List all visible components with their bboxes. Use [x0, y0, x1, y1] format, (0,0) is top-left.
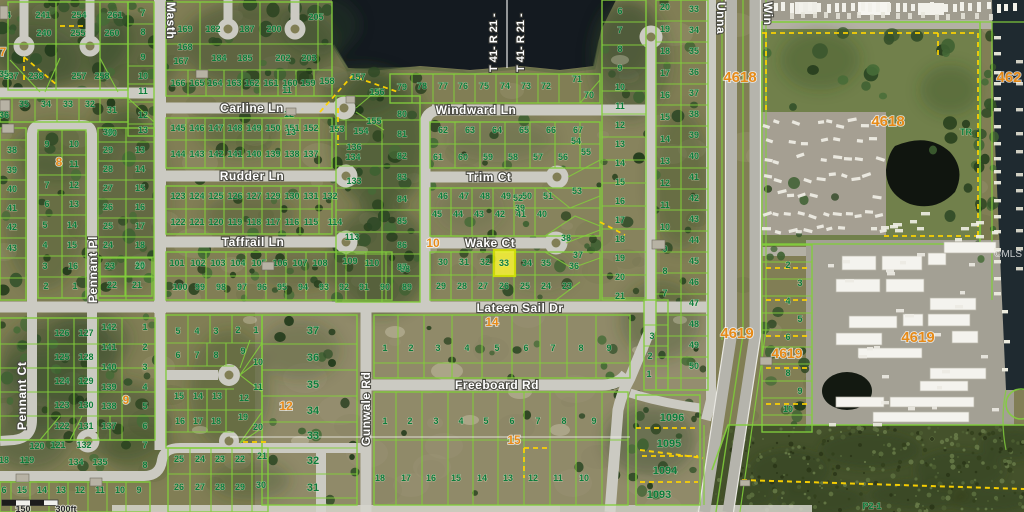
- svg-text:32: 32: [307, 455, 319, 467]
- svg-text:120: 120: [208, 217, 223, 227]
- svg-text:136: 136: [346, 142, 361, 152]
- svg-text:80: 80: [397, 109, 407, 119]
- svg-text:137: 137: [303, 149, 318, 159]
- svg-text:166: 166: [170, 78, 185, 88]
- svg-text:7: 7: [550, 343, 555, 353]
- svg-text:37: 37: [573, 250, 583, 260]
- svg-text:84: 84: [397, 194, 407, 204]
- svg-text:7: 7: [617, 25, 622, 35]
- svg-text:Win: Win: [761, 2, 775, 25]
- svg-text:154: 154: [353, 126, 368, 136]
- svg-text:Unna: Unna: [714, 2, 728, 34]
- svg-text:13: 13: [286, 127, 296, 137]
- svg-text:7: 7: [0, 45, 7, 59]
- svg-text:168: 168: [177, 42, 192, 52]
- svg-text:40: 40: [7, 184, 17, 194]
- svg-text:90: 90: [380, 282, 390, 292]
- svg-text:Freeboard Rd: Freeboard Rd: [455, 378, 539, 392]
- svg-text:6: 6: [509, 416, 514, 426]
- svg-text:11: 11: [553, 473, 563, 483]
- svg-text:31: 31: [307, 482, 319, 494]
- svg-text:261: 261: [107, 10, 122, 20]
- svg-text:8: 8: [140, 27, 145, 37]
- svg-text:15: 15: [451, 473, 461, 483]
- svg-text:5: 5: [142, 401, 147, 411]
- svg-text:12: 12: [75, 485, 85, 495]
- svg-text:16: 16: [175, 416, 185, 426]
- svg-text:48: 48: [689, 319, 699, 329]
- svg-text:109: 109: [342, 256, 357, 266]
- svg-text:4: 4: [42, 240, 47, 250]
- svg-text:6: 6: [142, 421, 147, 431]
- svg-text:5: 5: [494, 343, 499, 353]
- svg-text:140: 140: [246, 149, 261, 159]
- svg-text:1: 1: [382, 416, 387, 426]
- svg-text:17: 17: [401, 473, 411, 483]
- svg-text:1: 1: [646, 369, 651, 379]
- svg-text:4619: 4619: [901, 329, 934, 346]
- svg-text:11: 11: [253, 382, 263, 392]
- svg-text:6: 6: [785, 332, 790, 342]
- svg-text:14: 14: [477, 473, 487, 483]
- svg-text:145: 145: [170, 123, 185, 133]
- svg-text:32: 32: [85, 99, 95, 109]
- svg-text:12: 12: [615, 120, 625, 130]
- svg-text:7: 7: [535, 416, 540, 426]
- svg-text:155: 155: [366, 116, 381, 126]
- svg-text:1093: 1093: [647, 489, 671, 501]
- svg-text:29: 29: [436, 281, 446, 291]
- svg-text:115: 115: [304, 217, 319, 227]
- svg-text:184: 184: [211, 53, 226, 63]
- svg-text:96: 96: [257, 282, 267, 292]
- svg-text:57: 57: [533, 152, 543, 162]
- svg-text:21: 21: [615, 291, 625, 301]
- svg-text:104: 104: [230, 258, 245, 268]
- svg-text:1: 1: [382, 343, 387, 353]
- svg-text:254: 254: [71, 10, 86, 20]
- svg-text:141: 141: [101, 342, 116, 352]
- svg-text:1: 1: [142, 322, 147, 332]
- svg-text:36: 36: [569, 261, 579, 271]
- svg-text:165: 165: [189, 78, 204, 88]
- svg-text:20: 20: [615, 272, 625, 282]
- svg-text:33: 33: [63, 99, 73, 109]
- svg-text:54: 54: [571, 136, 581, 146]
- svg-text:41: 41: [7, 203, 17, 213]
- svg-text:42: 42: [495, 209, 505, 219]
- svg-text:32: 32: [480, 257, 490, 267]
- svg-text:167: 167: [173, 56, 188, 66]
- svg-text:44: 44: [453, 209, 463, 219]
- svg-text:16: 16: [426, 473, 436, 483]
- svg-text:35: 35: [19, 99, 29, 109]
- svg-text:28: 28: [103, 164, 113, 174]
- svg-text:13: 13: [660, 156, 670, 166]
- svg-text:137: 137: [101, 421, 116, 431]
- svg-text:2: 2: [407, 416, 412, 426]
- svg-text:35: 35: [541, 258, 551, 268]
- svg-text:101: 101: [169, 258, 184, 268]
- svg-text:61: 61: [433, 152, 443, 162]
- svg-text:12: 12: [239, 393, 249, 403]
- svg-text:134: 134: [345, 152, 360, 162]
- svg-text:70: 70: [584, 90, 594, 100]
- svg-text:58: 58: [508, 152, 518, 162]
- svg-text:140: 140: [101, 362, 116, 372]
- svg-text:14: 14: [660, 134, 670, 144]
- svg-text:2: 2: [142, 342, 147, 352]
- svg-text:24: 24: [195, 454, 205, 464]
- svg-text:16: 16: [135, 202, 145, 212]
- svg-text:127: 127: [78, 328, 93, 338]
- svg-text:91: 91: [359, 282, 369, 292]
- svg-text:77: 77: [438, 81, 448, 91]
- svg-text:15: 15: [660, 112, 670, 122]
- svg-text:25: 25: [174, 454, 184, 464]
- svg-text:138: 138: [101, 401, 116, 411]
- svg-text:39: 39: [515, 203, 525, 213]
- svg-text:8: 8: [561, 416, 566, 426]
- svg-text:15: 15: [135, 183, 145, 193]
- svg-text:5: 5: [797, 314, 802, 324]
- svg-text:169: 169: [177, 24, 192, 34]
- svg-text:113: 113: [345, 232, 360, 242]
- svg-text:20: 20: [135, 261, 145, 271]
- svg-text:Wake Ct: Wake Ct: [465, 236, 515, 250]
- svg-text:6: 6: [617, 6, 622, 16]
- svg-text:36: 36: [307, 352, 319, 364]
- svg-text:13: 13: [503, 473, 513, 483]
- svg-text:86: 86: [397, 240, 407, 250]
- svg-text:138: 138: [284, 149, 299, 159]
- svg-text:26: 26: [499, 281, 509, 291]
- svg-text:162: 162: [244, 78, 259, 88]
- svg-text:7: 7: [140, 8, 145, 18]
- svg-text:12: 12: [528, 473, 538, 483]
- svg-text:118: 118: [247, 217, 262, 227]
- svg-text:53: 53: [572, 186, 582, 196]
- svg-text:15: 15: [174, 391, 184, 401]
- svg-text:24: 24: [541, 281, 551, 291]
- svg-text:19: 19: [660, 24, 670, 34]
- svg-text:62: 62: [438, 125, 448, 135]
- svg-text:122: 122: [170, 217, 185, 227]
- svg-text:153: 153: [329, 124, 344, 134]
- svg-text:23: 23: [105, 261, 115, 271]
- svg-text:121: 121: [189, 217, 204, 227]
- svg-text:8: 8: [213, 350, 218, 360]
- svg-text:157: 157: [350, 72, 365, 82]
- svg-text:21: 21: [132, 280, 142, 290]
- svg-text:10: 10: [69, 139, 79, 149]
- svg-text:123: 123: [54, 400, 69, 410]
- svg-text:3: 3: [42, 261, 47, 271]
- svg-text:49: 49: [689, 340, 699, 350]
- svg-text:7: 7: [142, 440, 147, 450]
- svg-text:30: 30: [256, 480, 266, 490]
- svg-text:9: 9: [44, 139, 49, 149]
- svg-text:43: 43: [474, 209, 484, 219]
- svg-text:2: 2: [785, 260, 790, 270]
- svg-text:102: 102: [190, 258, 205, 268]
- svg-text:129: 129: [78, 376, 93, 386]
- svg-text:12: 12: [279, 399, 293, 413]
- svg-text:18: 18: [211, 416, 221, 426]
- svg-text:9: 9: [240, 346, 245, 356]
- svg-text:71: 71: [572, 74, 582, 84]
- svg-text:13: 13: [212, 391, 222, 401]
- svg-text:119: 119: [228, 217, 243, 227]
- svg-text:10: 10: [115, 485, 125, 495]
- svg-text:187: 187: [239, 24, 254, 34]
- svg-text:12: 12: [660, 178, 670, 188]
- svg-text:2: 2: [647, 351, 652, 361]
- svg-text:158: 158: [319, 76, 334, 86]
- svg-text:81: 81: [397, 129, 407, 139]
- svg-text:99: 99: [195, 282, 205, 292]
- svg-text:46: 46: [689, 277, 699, 287]
- svg-text:132: 132: [322, 191, 337, 201]
- svg-text:14: 14: [193, 391, 203, 401]
- svg-text:139: 139: [265, 149, 280, 159]
- svg-text:27: 27: [195, 482, 205, 492]
- svg-text:2: 2: [235, 325, 240, 335]
- svg-text:164: 164: [207, 78, 222, 88]
- svg-text:43: 43: [689, 214, 699, 224]
- svg-text:4: 4: [464, 343, 469, 353]
- svg-text:46: 46: [438, 191, 448, 201]
- svg-text:7: 7: [44, 180, 49, 190]
- svg-text:163: 163: [226, 78, 241, 88]
- svg-text:3: 3: [797, 278, 802, 288]
- svg-text:92: 92: [339, 282, 349, 292]
- svg-text:150: 150: [15, 504, 30, 512]
- svg-text:13: 13: [56, 485, 66, 495]
- svg-text:59: 59: [483, 152, 493, 162]
- svg-text:152: 152: [303, 123, 318, 133]
- svg-text:4618: 4618: [871, 113, 904, 130]
- svg-text:15: 15: [615, 177, 625, 187]
- svg-text:94: 94: [298, 282, 308, 292]
- svg-text:16: 16: [660, 90, 670, 100]
- svg-text:130: 130: [284, 191, 299, 201]
- svg-text:9: 9: [606, 343, 611, 353]
- svg-text:23: 23: [215, 454, 225, 464]
- svg-text:8: 8: [56, 155, 63, 169]
- svg-text:©MLS: ©MLS: [994, 249, 1022, 260]
- svg-text:142: 142: [101, 322, 116, 332]
- svg-text:89: 89: [402, 282, 412, 292]
- svg-text:6: 6: [175, 350, 180, 360]
- svg-text:29: 29: [235, 482, 245, 492]
- svg-text:Masth: Masth: [164, 2, 178, 39]
- svg-text:3: 3: [142, 362, 147, 372]
- svg-text:132: 132: [76, 440, 91, 450]
- svg-text:4619: 4619: [720, 325, 753, 342]
- svg-text:T 41- R 21 -: T 41- R 21 -: [488, 13, 500, 72]
- svg-text:150: 150: [265, 123, 280, 133]
- svg-text:37: 37: [307, 325, 319, 337]
- svg-text:147: 147: [208, 123, 223, 133]
- svg-text:42: 42: [7, 222, 17, 232]
- svg-text:20: 20: [253, 422, 263, 432]
- svg-text:4618: 4618: [723, 69, 756, 86]
- svg-text:72: 72: [541, 81, 551, 91]
- svg-text:87: 87: [397, 262, 407, 272]
- svg-text:124: 124: [189, 191, 204, 201]
- svg-text:9: 9: [123, 393, 130, 407]
- svg-text:Taffrail Ln: Taffrail Ln: [222, 235, 285, 249]
- svg-text:16: 16: [615, 196, 625, 206]
- svg-text:133: 133: [346, 176, 361, 186]
- svg-text:78: 78: [417, 81, 427, 91]
- svg-text:8: 8: [617, 44, 622, 54]
- svg-text:238: 238: [28, 71, 43, 81]
- svg-text:126: 126: [227, 191, 242, 201]
- svg-text:73: 73: [521, 81, 531, 91]
- svg-text:P2-1: P2-1: [862, 501, 881, 511]
- svg-text:9: 9: [136, 485, 141, 495]
- svg-text:34: 34: [307, 405, 320, 417]
- svg-text:129: 129: [265, 191, 280, 201]
- svg-text:7: 7: [662, 288, 667, 298]
- svg-text:21: 21: [257, 451, 267, 461]
- svg-text:16: 16: [68, 261, 78, 271]
- svg-text:1: 1: [72, 281, 77, 291]
- svg-text:40: 40: [537, 209, 547, 219]
- svg-text:11: 11: [138, 86, 148, 96]
- svg-text:15: 15: [17, 485, 27, 495]
- svg-text:82: 82: [397, 151, 407, 161]
- svg-text:38: 38: [561, 233, 571, 243]
- svg-text:258: 258: [94, 71, 109, 81]
- svg-text:123: 123: [170, 191, 185, 201]
- svg-text:205: 205: [308, 12, 323, 22]
- svg-text:124: 124: [54, 376, 69, 386]
- svg-text:18: 18: [660, 46, 670, 56]
- svg-text:28: 28: [457, 281, 467, 291]
- svg-text:9: 9: [591, 416, 596, 426]
- svg-text:13: 13: [615, 139, 625, 149]
- svg-text:Trim Ct: Trim Ct: [467, 170, 512, 184]
- svg-text:3: 3: [433, 416, 438, 426]
- svg-text:257: 257: [71, 71, 86, 81]
- svg-text:95: 95: [277, 282, 287, 292]
- svg-text:35: 35: [307, 379, 319, 391]
- svg-text:130: 130: [78, 400, 93, 410]
- svg-text:9: 9: [797, 386, 802, 396]
- svg-text:5: 5: [483, 416, 488, 426]
- svg-text:T 41- R 21 -: T 41- R 21 -: [515, 13, 527, 72]
- svg-text:47: 47: [689, 298, 699, 308]
- svg-text:128: 128: [78, 352, 93, 362]
- svg-text:Carline Ln: Carline Ln: [220, 101, 284, 115]
- svg-text:18: 18: [135, 240, 145, 250]
- svg-text:33: 33: [307, 430, 319, 442]
- svg-text:10: 10: [783, 404, 793, 414]
- svg-text:7: 7: [194, 350, 199, 360]
- svg-text:41: 41: [689, 172, 699, 182]
- svg-text:34: 34: [41, 99, 51, 109]
- svg-text:45: 45: [432, 209, 442, 219]
- svg-text:18: 18: [375, 473, 385, 483]
- svg-text:135: 135: [92, 457, 107, 467]
- svg-text:161: 161: [263, 78, 278, 88]
- svg-text:52: 52: [513, 193, 523, 203]
- svg-text:146: 146: [189, 123, 204, 133]
- svg-text:27: 27: [103, 183, 113, 193]
- svg-text:4: 4: [194, 326, 199, 336]
- svg-text:Pennant Ct: Pennant Ct: [15, 362, 29, 430]
- svg-text:42: 42: [689, 193, 699, 203]
- svg-text:121: 121: [50, 440, 65, 450]
- svg-text:117: 117: [266, 217, 281, 227]
- svg-text:85: 85: [397, 216, 407, 226]
- svg-text:9: 9: [617, 63, 622, 73]
- svg-text:TR: TR: [960, 127, 972, 137]
- svg-text:3: 3: [435, 343, 440, 353]
- svg-text:10: 10: [615, 82, 625, 92]
- svg-text:134: 134: [68, 457, 83, 467]
- svg-text:122: 122: [54, 421, 69, 431]
- svg-text:5: 5: [175, 326, 180, 336]
- svg-text:79: 79: [397, 82, 407, 92]
- svg-text:11: 11: [660, 200, 670, 210]
- svg-text:2: 2: [43, 281, 48, 291]
- svg-text:30: 30: [103, 127, 113, 137]
- svg-text:203: 203: [301, 53, 316, 63]
- svg-text:13: 13: [135, 145, 145, 155]
- svg-text:255: 255: [70, 28, 85, 38]
- svg-text:66: 66: [546, 125, 556, 135]
- svg-text:50: 50: [689, 361, 699, 371]
- svg-text:31: 31: [107, 105, 117, 115]
- svg-text:45: 45: [689, 256, 699, 266]
- svg-text:47: 47: [459, 191, 469, 201]
- svg-text:24: 24: [103, 240, 113, 250]
- svg-text:10: 10: [138, 71, 148, 81]
- svg-text:51: 51: [543, 191, 553, 201]
- svg-text:15: 15: [507, 433, 521, 447]
- svg-text:17: 17: [193, 416, 203, 426]
- svg-text:26: 26: [103, 202, 113, 212]
- svg-text:11: 11: [69, 159, 79, 169]
- svg-text:6: 6: [1, 485, 6, 495]
- svg-text:43: 43: [7, 243, 17, 253]
- svg-text:159: 159: [300, 78, 315, 88]
- svg-text:50: 50: [522, 191, 532, 201]
- svg-text:Pennant Pl: Pennant Pl: [86, 236, 100, 303]
- svg-text:240: 240: [36, 28, 51, 38]
- svg-text:76: 76: [458, 81, 468, 91]
- svg-text:44: 44: [689, 235, 699, 245]
- svg-text:93: 93: [319, 282, 329, 292]
- svg-text:30: 30: [438, 257, 448, 267]
- svg-text:125: 125: [208, 191, 223, 201]
- svg-text:39: 39: [7, 165, 17, 175]
- svg-text:2: 2: [408, 343, 413, 353]
- svg-text:149: 149: [246, 123, 261, 133]
- svg-text:3: 3: [649, 331, 654, 341]
- svg-text:4: 4: [458, 416, 463, 426]
- svg-text:9: 9: [140, 52, 145, 62]
- svg-text:131: 131: [303, 191, 318, 201]
- svg-text:63: 63: [465, 125, 475, 135]
- svg-text:28: 28: [215, 482, 225, 492]
- svg-text:241: 241: [35, 10, 50, 20]
- svg-text:106: 106: [272, 258, 287, 268]
